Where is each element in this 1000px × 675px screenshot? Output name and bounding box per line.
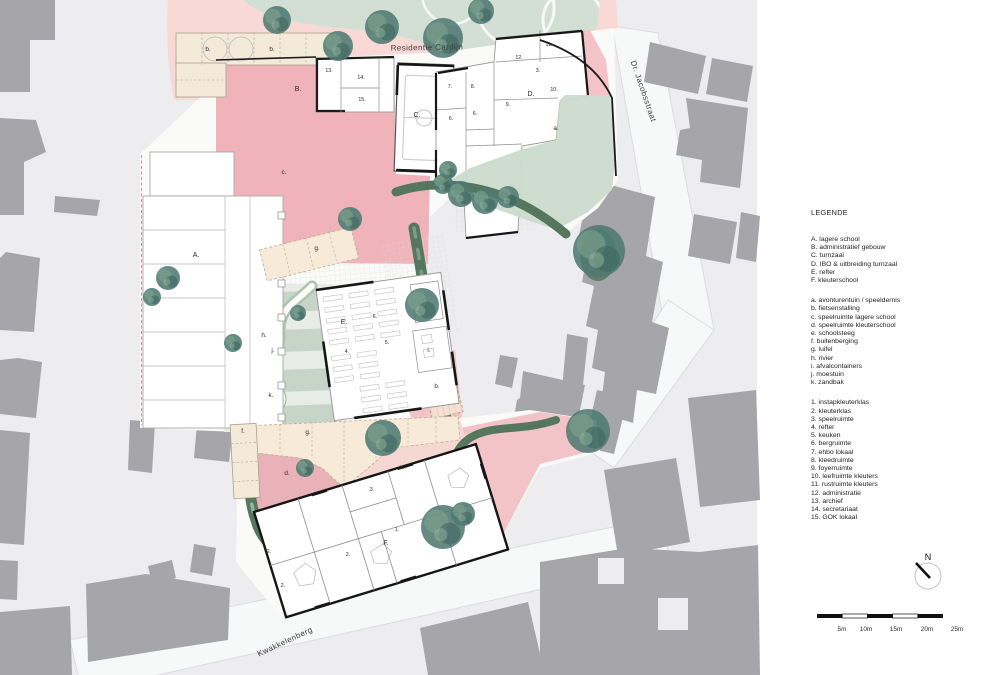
plan-label-20m: 20m bbox=[921, 626, 933, 633]
plan-label-8: 8. bbox=[471, 84, 475, 90]
building-b bbox=[316, 57, 394, 112]
legend-item: 13. archief bbox=[811, 498, 986, 506]
tree-icon bbox=[451, 502, 475, 526]
legend-item: 5. keuken bbox=[811, 432, 986, 440]
plan-label-15m: 15m bbox=[890, 626, 902, 633]
plan-label-2: 2. bbox=[346, 552, 350, 558]
legend-item: A. lagere school bbox=[811, 236, 986, 244]
plan-label-1: 1. bbox=[395, 527, 399, 533]
plan-label-2: 2. bbox=[267, 549, 271, 555]
plan-label-7: 7. bbox=[448, 84, 452, 90]
legend-item: h. rivier bbox=[811, 355, 986, 363]
tree-icon bbox=[573, 225, 625, 277]
tree-icon bbox=[143, 288, 161, 306]
legend-item: i. afvalcontainers bbox=[811, 363, 986, 371]
plan-label-d: D. bbox=[528, 91, 535, 98]
legend-item: D. IBO & uitbreiding turnzaal bbox=[811, 261, 986, 269]
tree-icon bbox=[566, 409, 610, 453]
legend-item: 10. leefruimte kleuters bbox=[811, 473, 986, 481]
legend-areas: a. avonturentuin / speeldernisb. fietsen… bbox=[811, 297, 986, 387]
plan-label-6: 6. bbox=[373, 314, 377, 320]
plan-label-i: i. bbox=[427, 347, 430, 354]
tree-icon bbox=[296, 459, 314, 477]
plan-label-b: b. bbox=[269, 46, 275, 53]
plan-label-6: 6. bbox=[449, 116, 453, 122]
plan-label-n: N bbox=[925, 552, 932, 562]
legend-item: f. buitenberging bbox=[811, 338, 986, 346]
plan-label-e: e. bbox=[399, 464, 405, 471]
plan-label-c: C. bbox=[414, 112, 421, 119]
plan-label-e: E. bbox=[341, 319, 348, 326]
plan-label-6: 6. bbox=[473, 111, 477, 117]
legend-item: g. luifel bbox=[811, 346, 986, 354]
legend-item: a. avonturentuin / speeldernis bbox=[811, 297, 986, 305]
legend-rooms: 1. instapkleuterklas2. kleuterklas3. spe… bbox=[811, 399, 986, 522]
building-e bbox=[316, 272, 459, 420]
plan-label-residentiecardijn: Residentie Cardijn bbox=[391, 42, 464, 52]
tree-icon bbox=[405, 288, 439, 322]
legend-item: F. kleuterschool bbox=[811, 277, 986, 285]
plan-label-11: 11. bbox=[546, 42, 553, 48]
legend-item: E. refter bbox=[811, 269, 986, 277]
plan-label-13: 13. bbox=[325, 68, 332, 74]
tree-icon bbox=[448, 181, 474, 207]
plan-label-10: 10. bbox=[550, 87, 557, 93]
legend-item: 6. bergruimte bbox=[811, 440, 986, 448]
plan-label-15: 15. bbox=[358, 97, 365, 103]
legend-item: k. zandbak bbox=[811, 379, 986, 387]
tree-icon bbox=[365, 10, 399, 44]
legend-item: B. administratief gebouw bbox=[811, 244, 986, 252]
plan-label-k: k. bbox=[269, 392, 274, 399]
legend-item: d. speelruimte kleuterschool bbox=[811, 322, 986, 330]
tree-icon bbox=[323, 31, 353, 61]
legend-item: 14. secretariaat bbox=[811, 506, 986, 514]
storage-f bbox=[230, 423, 260, 498]
tree-icon bbox=[497, 186, 519, 208]
plan-label-h: h. bbox=[261, 332, 267, 339]
tree-icon bbox=[290, 305, 306, 321]
legend-item: b. fietsenstalling bbox=[811, 305, 986, 313]
plan-label-g: g. bbox=[305, 429, 311, 436]
site-plan-page: Residentie CardijnDr. JacobsstraatKwakke… bbox=[0, 0, 1000, 675]
plan-label-b: b. bbox=[205, 46, 211, 53]
plan-label-9: 9. bbox=[506, 102, 510, 108]
scale-bar bbox=[817, 614, 943, 618]
plan-label-b: B. bbox=[295, 86, 302, 93]
legend-item: 3. speelruimte bbox=[811, 416, 986, 424]
legend-item: 11. rustruimte kleuters bbox=[811, 481, 986, 489]
legend-item: 9. foyerruimte bbox=[811, 465, 986, 473]
legend-buildings: A. lagere schoolB. administratief gebouw… bbox=[811, 236, 986, 285]
plan-label-c: c. bbox=[282, 169, 287, 176]
plan-label-f: f. bbox=[241, 428, 245, 435]
legend-item: j. moestuin bbox=[811, 371, 986, 379]
plan-label-12: 12. bbox=[515, 55, 522, 61]
plan-label-5m: 5m bbox=[838, 626, 847, 633]
legend-item: 12. administratie bbox=[811, 490, 986, 498]
legend-item: 15. GOK lokaal bbox=[811, 514, 986, 522]
tree-icon bbox=[472, 188, 498, 214]
tree-icon bbox=[156, 266, 180, 290]
legend-item: 1. instapkleuterklas bbox=[811, 399, 986, 407]
legend-item: 7. ehbo lokaal bbox=[811, 449, 986, 457]
plan-label-14: 14. bbox=[357, 75, 364, 81]
legend-item: 8. kleedruimte bbox=[811, 457, 986, 465]
tree-icon bbox=[365, 420, 401, 456]
plan-label-2: 2. bbox=[281, 583, 285, 589]
plan-label-10m: 10m bbox=[860, 626, 872, 633]
plan-label-5: 5. bbox=[385, 340, 389, 346]
plan-label-g: g. bbox=[314, 245, 320, 252]
legend-item: e. schoolsteeg bbox=[811, 330, 986, 338]
plan-label-a: a. bbox=[553, 125, 559, 132]
legend: LEGENDE A. lagere schoolB. administratie… bbox=[811, 208, 986, 535]
legend-heading: LEGENDE bbox=[811, 208, 986, 217]
tree-icon bbox=[423, 18, 463, 58]
legend-item: c. speelruimte lagere school bbox=[811, 314, 986, 322]
plan-label-f: F. bbox=[383, 540, 389, 547]
tree-icon bbox=[263, 6, 291, 34]
plan-label-4: 4. bbox=[345, 349, 349, 355]
tree-icon bbox=[224, 334, 242, 352]
legend-item: 2. kleuterklas bbox=[811, 408, 986, 416]
plan-label-a: A. bbox=[193, 252, 200, 259]
plan-label-j: j. bbox=[270, 347, 274, 354]
legend-item: 4. refter bbox=[811, 424, 986, 432]
plan-label-25m: 25m bbox=[951, 626, 963, 633]
plan-label-3: 3. bbox=[370, 487, 374, 493]
tree-icon bbox=[338, 207, 362, 231]
plan-label-b: b. bbox=[434, 383, 440, 390]
legend-item: C. turnzaal bbox=[811, 252, 986, 260]
plan-label-3: 3. bbox=[536, 68, 540, 74]
plan-label-d: d. bbox=[284, 470, 290, 477]
